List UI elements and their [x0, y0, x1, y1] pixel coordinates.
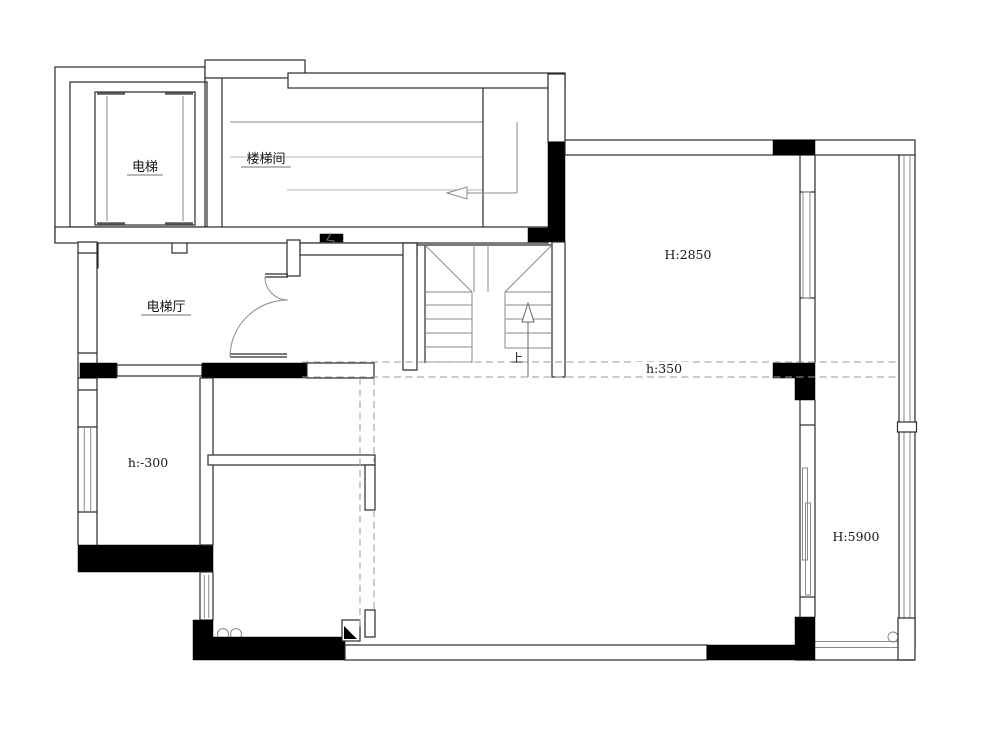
label-sunken-height: h:-300	[128, 455, 168, 470]
balcony	[795, 155, 917, 660]
label-step-height: h:350	[646, 361, 682, 376]
floor-plan-canvas: 电梯 楼梯间 电梯厅 H:2850 h:350 h:-300 H:5900 上	[0, 0, 1000, 735]
shear-wall-top-right	[773, 140, 815, 155]
floor-plan-drawing: 电梯 楼梯间 电梯厅 H:2850 h:350 h:-300 H:5900 上	[0, 0, 1000, 735]
label-elevator: 电梯	[132, 160, 158, 175]
sunken-room	[78, 378, 213, 620]
double-door	[230, 274, 288, 357]
elevator-hall-room	[78, 240, 417, 378]
label-elevator-hall: 电梯厅	[146, 300, 185, 315]
stair-up-arrow	[522, 303, 534, 322]
dashed-step-lines	[302, 362, 898, 630]
right-room	[565, 140, 915, 363]
label-stairwell: 楼梯间	[246, 152, 285, 167]
bottom-left-room	[208, 455, 375, 640]
window-room-balcony	[803, 192, 810, 298]
label-right-room-height: H:2850	[665, 247, 712, 262]
label-double-height: H:5900	[833, 529, 880, 544]
center-stairs	[403, 242, 565, 377]
labels: 电梯 楼梯间 电梯厅 H:2850 h:350 h:-300 H:5900 上	[127, 152, 880, 544]
label-stairs-up: 上	[511, 351, 523, 365]
glazing-mullion	[898, 422, 917, 432]
floor-drain	[888, 632, 898, 642]
stair-down-arrow	[447, 187, 467, 199]
perimeter-walls	[193, 363, 815, 660]
